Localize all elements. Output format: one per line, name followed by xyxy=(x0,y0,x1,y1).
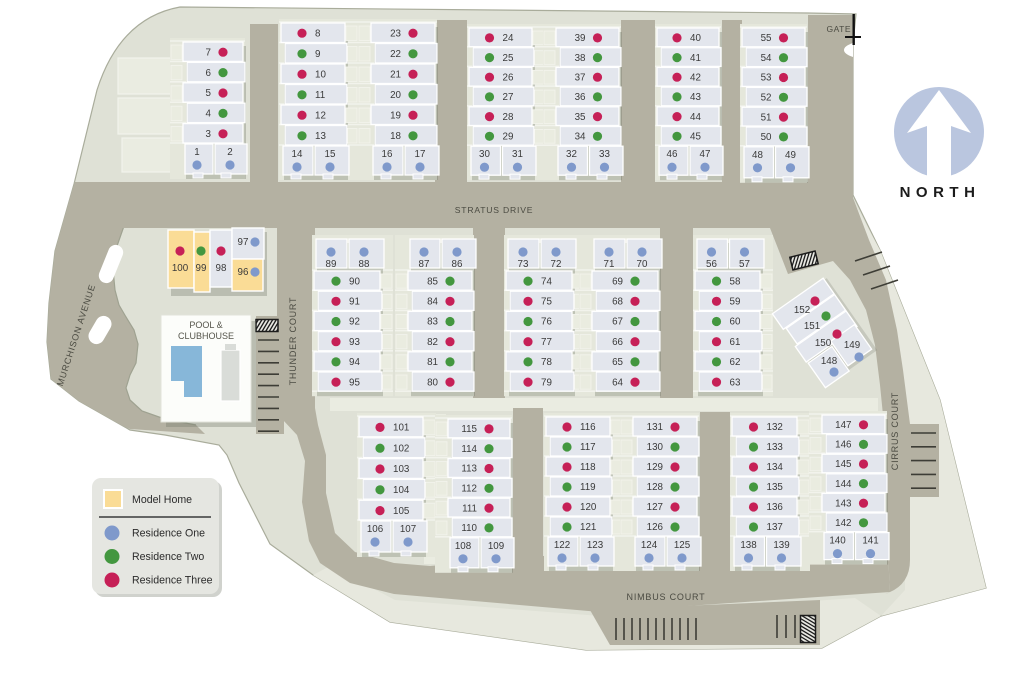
svg-text:105: 105 xyxy=(393,506,410,517)
svg-text:47: 47 xyxy=(700,149,711,160)
svg-text:108: 108 xyxy=(455,541,472,552)
svg-text:75: 75 xyxy=(541,297,552,308)
svg-text:THUNDER COURT: THUNDER COURT xyxy=(288,297,298,386)
svg-text:145: 145 xyxy=(835,459,852,470)
svg-text:33: 33 xyxy=(599,149,610,160)
svg-text:18: 18 xyxy=(390,131,401,142)
svg-text:98: 98 xyxy=(216,263,227,274)
svg-text:39: 39 xyxy=(575,33,586,44)
svg-text:132: 132 xyxy=(767,422,783,433)
svg-text:NIMBUS COURT: NIMBUS COURT xyxy=(627,592,706,602)
svg-text:150: 150 xyxy=(815,338,832,349)
svg-text:1: 1 xyxy=(194,147,199,158)
svg-text:139: 139 xyxy=(773,540,789,551)
svg-text:12: 12 xyxy=(315,111,326,122)
svg-text:152: 152 xyxy=(794,305,810,316)
svg-text:28: 28 xyxy=(503,112,514,123)
svg-text:90: 90 xyxy=(349,276,360,287)
svg-text:92: 92 xyxy=(349,317,360,328)
svg-text:85: 85 xyxy=(427,276,438,287)
svg-text:88: 88 xyxy=(359,259,370,270)
svg-text:22: 22 xyxy=(390,49,401,60)
svg-text:NORTH: NORTH xyxy=(900,184,981,201)
svg-text:Residence Two: Residence Two xyxy=(132,551,204,563)
svg-text:86: 86 xyxy=(452,259,463,270)
svg-text:126: 126 xyxy=(647,522,664,533)
svg-text:111: 111 xyxy=(462,503,477,514)
svg-text:68: 68 xyxy=(612,297,623,308)
svg-text:113: 113 xyxy=(461,464,477,475)
svg-text:52: 52 xyxy=(761,93,772,104)
svg-text:107: 107 xyxy=(400,524,416,535)
svg-text:55: 55 xyxy=(761,33,772,44)
svg-text:29: 29 xyxy=(503,132,514,143)
svg-text:38: 38 xyxy=(575,53,586,64)
svg-text:13: 13 xyxy=(315,131,326,142)
svg-text:71: 71 xyxy=(604,259,615,270)
svg-text:81: 81 xyxy=(427,357,438,368)
svg-text:72: 72 xyxy=(551,259,562,270)
svg-text:Model Home: Model Home xyxy=(132,494,192,506)
svg-text:78: 78 xyxy=(541,357,552,368)
svg-text:32: 32 xyxy=(566,149,577,160)
svg-text:118: 118 xyxy=(580,462,596,473)
svg-text:54: 54 xyxy=(761,53,772,64)
svg-text:77: 77 xyxy=(541,337,552,348)
svg-text:76: 76 xyxy=(541,317,552,328)
svg-text:143: 143 xyxy=(835,498,852,509)
svg-text:4: 4 xyxy=(206,109,212,120)
svg-text:43: 43 xyxy=(690,92,701,103)
svg-text:53: 53 xyxy=(761,73,772,84)
svg-text:73: 73 xyxy=(518,259,529,270)
svg-text:79: 79 xyxy=(541,377,552,388)
svg-text:34: 34 xyxy=(575,132,586,143)
svg-text:134: 134 xyxy=(767,462,784,473)
svg-text:Residence Three: Residence Three xyxy=(132,575,213,587)
svg-text:83: 83 xyxy=(427,317,438,328)
svg-text:57: 57 xyxy=(739,259,750,270)
svg-text:60: 60 xyxy=(730,317,741,328)
svg-text:121: 121 xyxy=(580,522,596,533)
svg-text:128: 128 xyxy=(647,482,664,493)
svg-text:27: 27 xyxy=(503,92,514,103)
svg-text:41: 41 xyxy=(690,53,701,64)
svg-text:142: 142 xyxy=(835,518,851,529)
svg-text:65: 65 xyxy=(612,357,623,368)
svg-text:149: 149 xyxy=(844,340,860,351)
svg-text:129: 129 xyxy=(647,462,663,473)
svg-text:10: 10 xyxy=(315,70,326,81)
svg-text:130: 130 xyxy=(647,442,664,453)
svg-text:21: 21 xyxy=(390,70,401,81)
svg-text:49: 49 xyxy=(785,150,796,161)
svg-text:151: 151 xyxy=(804,321,820,332)
svg-text:42: 42 xyxy=(690,73,701,84)
svg-text:51: 51 xyxy=(761,112,772,123)
svg-text:6: 6 xyxy=(206,68,212,79)
svg-text:58: 58 xyxy=(730,276,741,287)
svg-text:16: 16 xyxy=(382,149,393,160)
svg-text:44: 44 xyxy=(690,112,701,123)
svg-text:80: 80 xyxy=(427,377,438,388)
svg-text:103: 103 xyxy=(393,464,410,475)
svg-text:99: 99 xyxy=(196,263,207,274)
svg-text:109: 109 xyxy=(488,541,504,552)
svg-text:17: 17 xyxy=(415,149,426,160)
svg-text:120: 120 xyxy=(580,502,597,513)
svg-text:64: 64 xyxy=(612,377,623,388)
svg-text:POOL &: POOL & xyxy=(189,320,222,330)
svg-text:89: 89 xyxy=(326,259,337,270)
svg-text:70: 70 xyxy=(637,259,648,270)
svg-text:3: 3 xyxy=(206,129,212,140)
svg-text:CIRRUS COURT: CIRRUS COURT xyxy=(890,392,900,470)
svg-text:101: 101 xyxy=(393,423,409,434)
svg-text:106: 106 xyxy=(367,524,384,535)
svg-text:23: 23 xyxy=(390,29,401,40)
svg-text:59: 59 xyxy=(730,297,741,308)
svg-text:93: 93 xyxy=(349,337,360,348)
svg-text:102: 102 xyxy=(393,443,409,454)
svg-text:24: 24 xyxy=(503,33,514,44)
svg-text:116: 116 xyxy=(580,422,596,433)
svg-text:122: 122 xyxy=(554,540,570,551)
svg-text:7: 7 xyxy=(206,47,211,58)
svg-text:69: 69 xyxy=(612,276,623,287)
svg-text:61: 61 xyxy=(730,337,741,348)
svg-text:15: 15 xyxy=(325,149,336,160)
svg-text:5: 5 xyxy=(206,88,212,99)
svg-text:48: 48 xyxy=(752,150,763,161)
svg-text:STRATUS DRIVE: STRATUS DRIVE xyxy=(455,205,534,215)
svg-text:25: 25 xyxy=(503,53,514,64)
svg-text:50: 50 xyxy=(761,132,772,143)
svg-text:138: 138 xyxy=(740,540,757,551)
svg-text:30: 30 xyxy=(479,149,490,160)
svg-text:40: 40 xyxy=(690,33,701,44)
svg-text:144: 144 xyxy=(835,479,852,490)
svg-text:140: 140 xyxy=(829,536,846,547)
svg-text:31: 31 xyxy=(512,149,523,160)
svg-text:146: 146 xyxy=(835,440,852,451)
svg-text:114: 114 xyxy=(461,444,477,455)
svg-text:133: 133 xyxy=(767,442,784,453)
svg-text:147: 147 xyxy=(835,420,851,431)
svg-text:96: 96 xyxy=(238,267,249,278)
svg-text:135: 135 xyxy=(767,482,784,493)
svg-text:8: 8 xyxy=(315,29,321,40)
svg-text:141: 141 xyxy=(862,536,878,547)
svg-text:131: 131 xyxy=(647,422,663,433)
svg-text:9: 9 xyxy=(315,49,320,60)
svg-text:11: 11 xyxy=(315,90,325,101)
svg-text:26: 26 xyxy=(503,73,514,84)
svg-text:117: 117 xyxy=(580,442,596,453)
svg-text:Residence One: Residence One xyxy=(132,528,205,540)
svg-text:36: 36 xyxy=(575,92,586,103)
svg-text:119: 119 xyxy=(580,482,596,493)
svg-text:112: 112 xyxy=(461,484,477,495)
svg-text:127: 127 xyxy=(647,502,663,513)
svg-text:67: 67 xyxy=(612,317,623,328)
svg-text:148: 148 xyxy=(821,356,838,367)
svg-text:66: 66 xyxy=(612,337,623,348)
svg-text:123: 123 xyxy=(587,540,604,551)
svg-text:2: 2 xyxy=(227,147,232,158)
svg-text:37: 37 xyxy=(575,73,586,84)
svg-text:95: 95 xyxy=(349,377,360,388)
svg-text:14: 14 xyxy=(292,149,303,160)
svg-text:125: 125 xyxy=(674,540,691,551)
svg-text:91: 91 xyxy=(349,297,360,308)
svg-text:82: 82 xyxy=(427,337,438,348)
svg-text:115: 115 xyxy=(461,424,477,435)
svg-text:136: 136 xyxy=(767,502,784,513)
svg-text:94: 94 xyxy=(349,357,360,368)
svg-text:62: 62 xyxy=(730,357,741,368)
svg-text:100: 100 xyxy=(172,263,189,274)
svg-text:19: 19 xyxy=(390,111,401,122)
svg-text:63: 63 xyxy=(730,377,741,388)
svg-text:110: 110 xyxy=(461,523,477,534)
svg-text:45: 45 xyxy=(690,132,701,143)
svg-text:GATE: GATE xyxy=(826,24,851,34)
svg-text:124: 124 xyxy=(641,540,658,551)
svg-text:CLUBHOUSE: CLUBHOUSE xyxy=(178,331,234,341)
svg-text:84: 84 xyxy=(427,297,438,308)
svg-text:56: 56 xyxy=(706,259,717,270)
svg-text:87: 87 xyxy=(419,259,430,270)
svg-text:20: 20 xyxy=(390,90,401,101)
svg-text:74: 74 xyxy=(541,276,552,287)
svg-text:104: 104 xyxy=(393,485,410,496)
svg-text:97: 97 xyxy=(238,237,249,248)
svg-text:46: 46 xyxy=(667,149,678,160)
svg-text:137: 137 xyxy=(767,522,783,533)
svg-text:35: 35 xyxy=(575,112,586,123)
